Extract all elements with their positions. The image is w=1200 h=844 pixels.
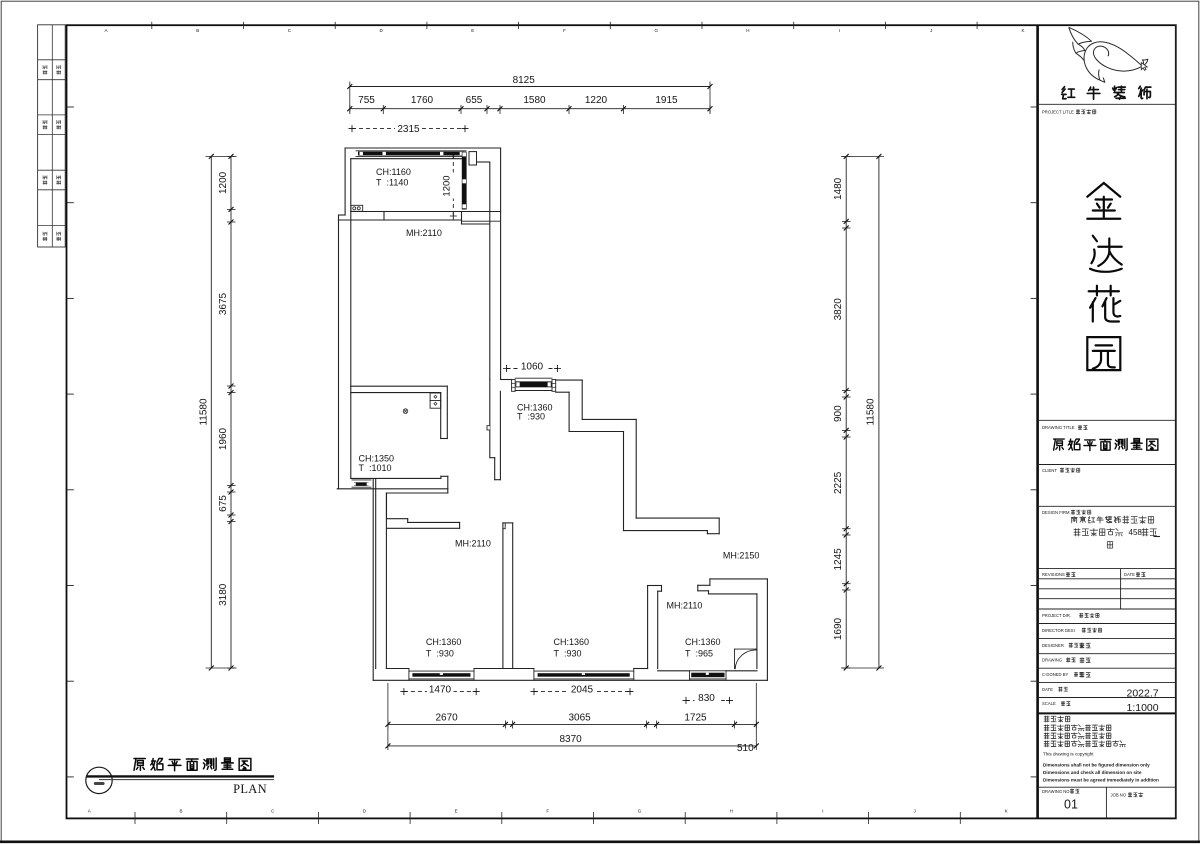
svg-text:B: B — [196, 28, 199, 33]
svg-text:A: A — [104, 28, 107, 33]
svg-text:Dimensions and check all dimen: Dimensions and check all dimension on si… — [1043, 770, 1142, 775]
svg-text:CH:1360: CH:1360 — [554, 637, 590, 647]
svg-text:1:1000: 1:1000 — [1127, 702, 1159, 714]
svg-text:Dimensions shall not be figure: Dimensions shall not be figured dimensio… — [1043, 762, 1150, 767]
svg-text:3065: 3065 — [568, 712, 591, 723]
svg-text:8125: 8125 — [513, 75, 536, 86]
svg-text:CH:1360: CH:1360 — [426, 637, 462, 647]
svg-text:2670: 2670 — [435, 712, 458, 723]
svg-text:CLIENT: CLIENT — [1042, 468, 1057, 473]
svg-text:T :1140: T :1140 — [376, 177, 408, 187]
svg-text:G: G — [654, 28, 658, 33]
svg-text:SCALE: SCALE — [1042, 701, 1056, 706]
svg-text:MH:2110: MH:2110 — [455, 538, 491, 548]
svg-text:H: H — [730, 809, 733, 814]
svg-text:E: E — [455, 809, 458, 814]
svg-text:3675: 3675 — [218, 292, 229, 315]
svg-text:This drawing is copyright: This drawing is copyright — [1043, 752, 1094, 757]
svg-text:1470: 1470 — [429, 684, 452, 695]
svg-text:2225: 2225 — [833, 471, 844, 494]
svg-text:K: K — [1005, 809, 1008, 814]
svg-text:B: B — [179, 809, 182, 814]
svg-text:1760: 1760 — [411, 95, 434, 106]
svg-text:T :1010: T :1010 — [359, 463, 392, 473]
svg-text:CH:1160: CH:1160 — [376, 167, 411, 177]
svg-text:REVISIONS: REVISIONS — [1042, 572, 1065, 577]
svg-text:DESIGN FIRM: DESIGN FIRM — [1042, 510, 1070, 515]
svg-text:1960: 1960 — [218, 427, 229, 450]
svg-text:I: I — [839, 28, 840, 33]
svg-text:1200: 1200 — [218, 171, 229, 194]
svg-text:DIRECTOR DESI: DIRECTOR DESI — [1042, 628, 1075, 633]
svg-text:1200: 1200 — [441, 175, 452, 196]
svg-text:C-DONED BY: C-DONED BY — [1042, 672, 1068, 677]
svg-text:3180: 3180 — [218, 583, 229, 606]
svg-text:CH:1360: CH:1360 — [685, 637, 721, 647]
svg-text:8370: 8370 — [559, 734, 582, 745]
svg-text:F: F — [563, 28, 566, 33]
svg-text:G: G — [638, 809, 642, 814]
svg-text:DESIGNER: DESIGNER — [1042, 643, 1064, 648]
svg-text:MH:2110: MH:2110 — [667, 601, 703, 611]
svg-text:Dimensions must be agreed imme: Dimensions must be agreed immediately in… — [1043, 778, 1159, 783]
svg-text:F: F — [546, 809, 549, 814]
svg-text:T :930: T :930 — [554, 649, 582, 659]
svg-text:PROJECT DIR.: PROJECT DIR. — [1042, 613, 1071, 618]
svg-text:I: I — [822, 809, 823, 814]
svg-text:2045: 2045 — [571, 684, 594, 695]
svg-text:900: 900 — [833, 405, 844, 422]
svg-text:755: 755 — [358, 95, 375, 106]
svg-text:655: 655 — [466, 95, 483, 106]
svg-text:DATE: DATE — [1124, 572, 1135, 577]
svg-text:3820: 3820 — [833, 298, 844, 321]
svg-text:H: H — [746, 28, 749, 33]
svg-text:1480: 1480 — [833, 177, 844, 200]
svg-text:DRAWING TITLE: DRAWING TITLE — [1042, 425, 1075, 430]
svg-text:2315: 2315 — [397, 124, 420, 135]
svg-text:DRAWING NO: DRAWING NO — [1042, 789, 1070, 794]
svg-text:MH:2110: MH:2110 — [406, 228, 442, 238]
svg-text:458: 458 — [1129, 528, 1143, 537]
svg-text:J: J — [930, 28, 932, 33]
svg-text:11580: 11580 — [866, 398, 877, 426]
svg-text:DATE: DATE — [1042, 687, 1053, 692]
svg-text:11580: 11580 — [198, 398, 209, 426]
svg-text:510: 510 — [737, 743, 754, 754]
svg-text:1725: 1725 — [684, 712, 707, 723]
svg-text:1580: 1580 — [523, 95, 546, 106]
svg-text:JOB NO: JOB NO — [1111, 792, 1127, 797]
svg-text:T :930: T :930 — [517, 411, 545, 421]
svg-text:MH:2150: MH:2150 — [723, 551, 760, 561]
svg-text:PLAN: PLAN — [233, 782, 267, 796]
svg-text:J: J — [913, 809, 915, 814]
svg-text:1245: 1245 — [833, 548, 844, 571]
svg-text:830: 830 — [698, 693, 715, 704]
svg-text:T :930: T :930 — [426, 649, 454, 659]
svg-text:DRAWING: DRAWING — [1042, 658, 1062, 663]
svg-text:1220: 1220 — [585, 95, 608, 106]
svg-text:675: 675 — [218, 495, 229, 512]
svg-text:T :965: T :965 — [685, 649, 713, 659]
svg-text:K: K — [1021, 28, 1024, 33]
svg-text:E: E — [471, 28, 474, 33]
svg-text:1915: 1915 — [655, 95, 678, 106]
svg-text:A: A — [88, 809, 91, 814]
svg-text:2022.7: 2022.7 — [1127, 687, 1159, 699]
svg-text:1060: 1060 — [521, 361, 544, 372]
svg-text:1690: 1690 — [833, 617, 844, 640]
svg-text:PROJECT LITLE: PROJECT LITLE — [1042, 110, 1074, 115]
svg-text:01: 01 — [1064, 798, 1078, 812]
